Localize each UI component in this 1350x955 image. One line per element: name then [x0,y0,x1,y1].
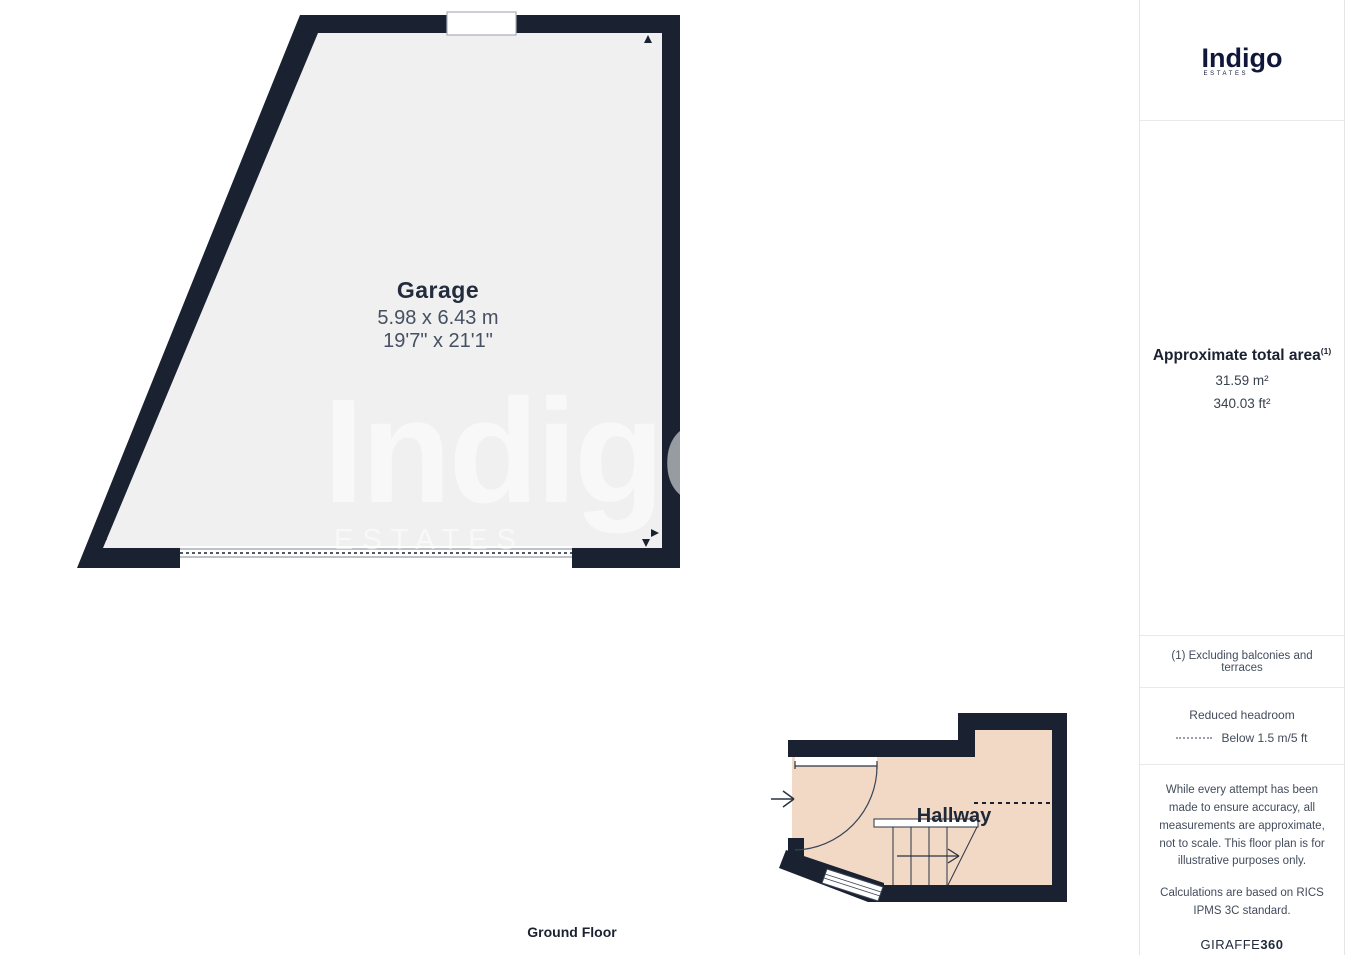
indigo-logo: Indigo ESTATES [1202,43,1283,77]
disclaimer-paragraph-2: Calculations are based on RICS IPMS 3C s… [1153,885,1331,921]
total-area-metric: 31.59 m² [1215,373,1268,388]
total-area-title: Approximate total area(1) [1153,346,1331,365]
legend-section: Reduced headroom Below 1.5 m/5 ft [1140,688,1344,765]
garage-room [77,12,680,570]
floorplan-page: Indigo ESTATES Garage 5.98 x 6.43 m 19'7… [0,0,1350,955]
hallway-wall-top-left [788,740,975,757]
garage-dimensions-metric: 5.98 x 6.43 m [377,307,498,330]
legend-row: Below 1.5 m/5 ft [1176,731,1307,745]
brand-name: GIRAFFE [1200,937,1260,952]
garage-dimensions-imperial: 19'7" x 21'1" [383,330,493,353]
giraffe360-brand: GIRAFFE360 [1153,935,1331,955]
total-area-title-text: Approximate total area [1153,347,1321,364]
brand-suffix: 360 [1260,937,1283,952]
total-area-imperial: 340.03 ft² [1213,396,1270,411]
logo-name: Indigo [1202,43,1283,74]
disclaimer-section: While every attempt has been made to ens… [1140,765,1344,955]
footnote-text: (1) Excluding balconies and terraces [1150,650,1334,674]
legend-item-text: Below 1.5 m/5 ft [1221,731,1307,745]
plan-area: Indigo ESTATES Garage 5.98 x 6.43 m 19'7… [0,0,1140,955]
garage-label: Garage [397,277,479,304]
legend-title: Reduced headroom [1189,708,1294,722]
floor-title: Ground Floor [527,924,616,940]
garage-window [447,12,516,35]
hallway-wall-top-right [958,713,1067,730]
disclaimer-paragraph-1: While every attempt has been made to ens… [1153,782,1331,871]
hallway-wall-bottom [868,885,1067,902]
logo-section: Indigo ESTATES [1140,0,1344,121]
hallway-wall-right [1052,713,1067,902]
dotted-line-icon [1176,737,1212,739]
entry-arrow-icon [771,791,794,807]
total-area-section: Approximate total area(1) 31.59 m² 340.0… [1140,121,1344,636]
hallway-label: Hallway [917,805,991,828]
footnote-marker: (1) [1321,346,1331,356]
info-sidebar: Indigo ESTATES Approximate total area(1)… [1139,0,1345,955]
footnote-section: (1) Excluding balconies and terraces [1140,636,1344,688]
garage-floor [103,33,662,548]
